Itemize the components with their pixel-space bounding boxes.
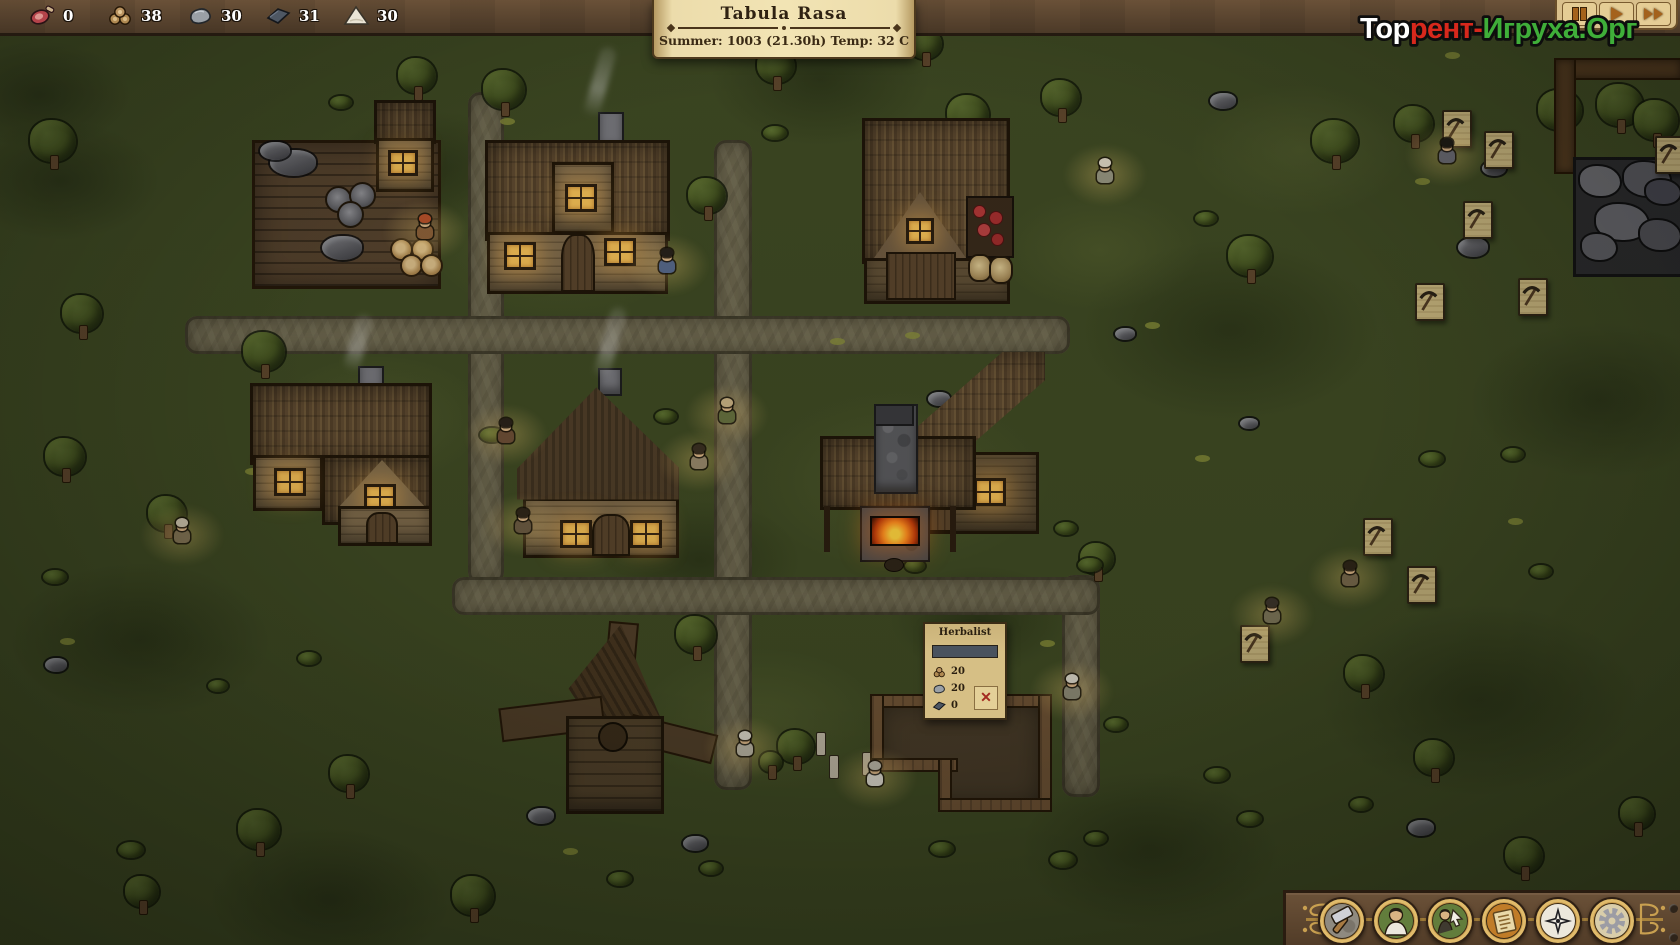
construction-panel-title: Herbalist bbox=[925, 627, 1005, 638]
support-post bbox=[824, 506, 830, 552]
watermark: Торрент-Игруха.Орг bbox=[1356, 8, 1678, 48]
tree bbox=[1620, 798, 1654, 829]
bush bbox=[1195, 212, 1217, 225]
construction-progress-bar bbox=[932, 645, 998, 658]
requirement-row: 20 bbox=[932, 681, 965, 696]
gable-window bbox=[906, 218, 934, 244]
bush bbox=[1105, 718, 1127, 731]
pickaxe-icon bbox=[1417, 285, 1439, 315]
tree bbox=[45, 438, 85, 475]
grass-tuft bbox=[1508, 518, 1523, 525]
barrel bbox=[337, 201, 364, 228]
main-toolbar bbox=[1283, 890, 1680, 945]
barn[interactable] bbox=[862, 112, 1012, 298]
bush bbox=[208, 680, 228, 692]
cottage-l[interactable] bbox=[250, 360, 435, 545]
villager[interactable] bbox=[173, 518, 191, 544]
pickaxe-icon bbox=[1409, 568, 1431, 598]
bush bbox=[43, 570, 67, 584]
banner-divider bbox=[668, 25, 900, 31]
requirement-row: 20 bbox=[932, 664, 965, 679]
villager[interactable] bbox=[497, 418, 515, 444]
villager[interactable] bbox=[736, 731, 754, 757]
villager[interactable] bbox=[866, 761, 884, 787]
tree bbox=[483, 70, 525, 109]
watermark-part-3: Игруха.Орг bbox=[1483, 13, 1638, 45]
svg-text:Торрент-Игруха.Орг: Торрент-Игруха.Орг bbox=[1360, 13, 1637, 45]
grass-tuft bbox=[905, 332, 920, 339]
toolbar-button-professions[interactable] bbox=[1426, 897, 1474, 945]
wall-segment-material bbox=[816, 732, 826, 756]
door bbox=[561, 234, 595, 292]
resource-sand: 30 bbox=[342, 3, 398, 29]
grass-tuft bbox=[1145, 322, 1160, 329]
cliff-edge bbox=[1556, 60, 1680, 78]
iron-icon bbox=[932, 699, 946, 713]
window bbox=[630, 520, 662, 548]
bush bbox=[298, 652, 320, 665]
mine-marker[interactable] bbox=[1655, 136, 1680, 174]
resource-ham-count: 0 bbox=[63, 7, 73, 25]
boulder bbox=[1408, 820, 1434, 836]
boulder bbox=[683, 836, 707, 851]
watermark-part-1: Тор bbox=[1360, 13, 1410, 45]
grass-tuft bbox=[1040, 640, 1055, 647]
tree bbox=[62, 295, 102, 332]
mine-marker[interactable] bbox=[1463, 201, 1493, 239]
villager[interactable] bbox=[1263, 598, 1281, 624]
villager-icon bbox=[1379, 904, 1413, 938]
logs-icon bbox=[932, 665, 946, 679]
tree bbox=[238, 810, 280, 849]
boulder bbox=[1115, 328, 1135, 340]
bush bbox=[1530, 565, 1552, 578]
grass-tuft bbox=[830, 338, 845, 345]
toolbar-button-villagers[interactable] bbox=[1372, 897, 1420, 945]
pickaxe-icon bbox=[1520, 280, 1542, 310]
resource-logs: 38 bbox=[106, 3, 162, 29]
toolbar-button-settings[interactable] bbox=[1588, 897, 1636, 945]
pickaxe-icon bbox=[1657, 138, 1679, 168]
windmill[interactable] bbox=[500, 620, 715, 820]
stone-icon bbox=[932, 682, 946, 696]
road-horizontal-south bbox=[452, 577, 1100, 615]
tree bbox=[1042, 80, 1080, 115]
barn-door bbox=[886, 252, 956, 300]
dormer-window bbox=[565, 184, 597, 212]
tree bbox=[1415, 740, 1453, 775]
bush bbox=[700, 862, 722, 875]
ham-icon bbox=[28, 3, 56, 29]
grass-tuft bbox=[1195, 455, 1210, 462]
villager[interactable] bbox=[514, 508, 532, 534]
rivet bbox=[1669, 904, 1678, 913]
produce-stall bbox=[966, 196, 1014, 258]
grass-tuft bbox=[1445, 52, 1460, 59]
game-screen: Herbalist 20 20 0 ✕ 0 bbox=[0, 0, 1680, 945]
wall-frame bbox=[938, 798, 1052, 812]
date-temperature: Summer: 1003 (21.30h) Temp: 32 C bbox=[654, 33, 914, 48]
chimney-cap bbox=[874, 404, 914, 426]
rock-outcrop bbox=[1576, 160, 1680, 274]
resource-iron-count: 31 bbox=[299, 7, 320, 25]
bucket bbox=[884, 558, 904, 572]
pickaxe-icon bbox=[1486, 133, 1508, 163]
bush bbox=[608, 872, 632, 886]
tree bbox=[1312, 120, 1358, 162]
tree bbox=[1634, 100, 1678, 140]
villager[interactable] bbox=[1341, 561, 1359, 587]
rivet bbox=[1669, 933, 1678, 942]
bush bbox=[1502, 448, 1524, 461]
mine-marker[interactable] bbox=[1407, 566, 1437, 604]
tree bbox=[1505, 838, 1543, 873]
scroll-icon bbox=[1487, 904, 1521, 938]
grass-tuft bbox=[60, 638, 75, 645]
settlement-banner: Tabula Rasa Summer: 1003 (21.30h) Temp: … bbox=[652, 0, 916, 59]
sand-icon bbox=[342, 3, 370, 29]
requirement-row: 0 bbox=[932, 698, 958, 713]
stone-pile bbox=[322, 236, 362, 260]
resource-logs-count: 38 bbox=[141, 7, 162, 25]
resource-stone: 30 bbox=[186, 3, 242, 29]
villager[interactable] bbox=[690, 444, 708, 470]
compass-icon bbox=[1541, 904, 1575, 938]
settlement-name: Tabula Rasa bbox=[654, 4, 914, 24]
stone-pile bbox=[260, 142, 290, 160]
support-post bbox=[950, 506, 956, 552]
game-world: Herbalist 20 20 0 ✕ bbox=[0, 0, 1680, 945]
grass-patch bbox=[10, 562, 270, 718]
resource-stone-count: 30 bbox=[221, 7, 242, 25]
requirement-value: 20 bbox=[951, 683, 965, 694]
tree bbox=[452, 876, 494, 915]
bush bbox=[1238, 812, 1262, 826]
boulder bbox=[1458, 238, 1488, 257]
bush bbox=[1055, 522, 1077, 535]
bush bbox=[1085, 832, 1107, 845]
barrel bbox=[989, 256, 1013, 284]
hut-window bbox=[388, 150, 418, 176]
bush bbox=[763, 126, 787, 140]
tree bbox=[125, 876, 159, 907]
cottage-l-roof bbox=[250, 383, 432, 465]
logs-icon bbox=[106, 3, 134, 29]
bush bbox=[1420, 452, 1444, 466]
window bbox=[274, 468, 306, 496]
resource-iron: 31 bbox=[264, 3, 320, 29]
resource-ham: 0 bbox=[28, 3, 73, 29]
grass-patch bbox=[1000, 190, 1200, 310]
bush bbox=[930, 842, 954, 856]
bush bbox=[1078, 558, 1102, 572]
tree bbox=[1345, 656, 1383, 691]
bush bbox=[1205, 768, 1229, 782]
door bbox=[592, 514, 630, 556]
boulder bbox=[1240, 418, 1258, 429]
tree bbox=[30, 120, 76, 162]
villager[interactable] bbox=[1096, 158, 1114, 184]
forge-fire bbox=[870, 516, 920, 546]
requirement-value: 20 bbox=[951, 666, 965, 677]
villager-arrow-icon bbox=[1433, 904, 1467, 938]
grass-patch bbox=[1320, 604, 1640, 796]
grass-patch bbox=[1020, 772, 1280, 928]
tree bbox=[688, 178, 726, 213]
road-horizontal-north bbox=[185, 316, 1070, 354]
cliff-edge bbox=[1556, 60, 1574, 172]
gear-icon bbox=[1595, 904, 1629, 938]
cancel-construction-button[interactable]: ✕ bbox=[974, 686, 998, 710]
pickaxe-icon bbox=[1465, 203, 1487, 233]
boulder bbox=[45, 658, 67, 672]
toolbar-button-journal[interactable] bbox=[1480, 897, 1528, 945]
stone-icon bbox=[186, 3, 214, 29]
window bbox=[504, 242, 536, 270]
resource-sand-count: 30 bbox=[377, 7, 398, 25]
mine-marker[interactable] bbox=[1518, 278, 1548, 316]
toolbar-button-navigate[interactable] bbox=[1534, 897, 1582, 945]
watermark-part-2: рент- bbox=[1410, 13, 1483, 45]
iron-icon bbox=[264, 3, 292, 29]
hammer-icon bbox=[1325, 904, 1359, 938]
smithy[interactable] bbox=[820, 352, 1048, 560]
window bbox=[974, 478, 1006, 506]
door bbox=[366, 512, 398, 544]
requirement-value: 0 bbox=[951, 700, 958, 711]
boulder bbox=[1210, 93, 1236, 109]
villager[interactable] bbox=[718, 398, 736, 424]
pickaxe-icon bbox=[1365, 520, 1387, 550]
mine-marker[interactable] bbox=[1415, 283, 1445, 321]
tree bbox=[398, 58, 436, 93]
tree bbox=[1228, 236, 1272, 276]
construction-panel[interactable]: Herbalist 20 20 0 ✕ bbox=[923, 622, 1007, 720]
bush bbox=[118, 842, 144, 858]
villager[interactable] bbox=[1063, 674, 1081, 700]
villager[interactable] bbox=[416, 214, 434, 240]
tree bbox=[330, 756, 368, 791]
grass-tuft bbox=[563, 848, 578, 855]
windmill-hub bbox=[598, 722, 628, 752]
villager[interactable] bbox=[658, 248, 676, 274]
toolbar-button-build[interactable] bbox=[1318, 897, 1366, 945]
villager[interactable] bbox=[1438, 138, 1456, 164]
bush bbox=[1350, 798, 1372, 811]
bush bbox=[1050, 852, 1076, 868]
